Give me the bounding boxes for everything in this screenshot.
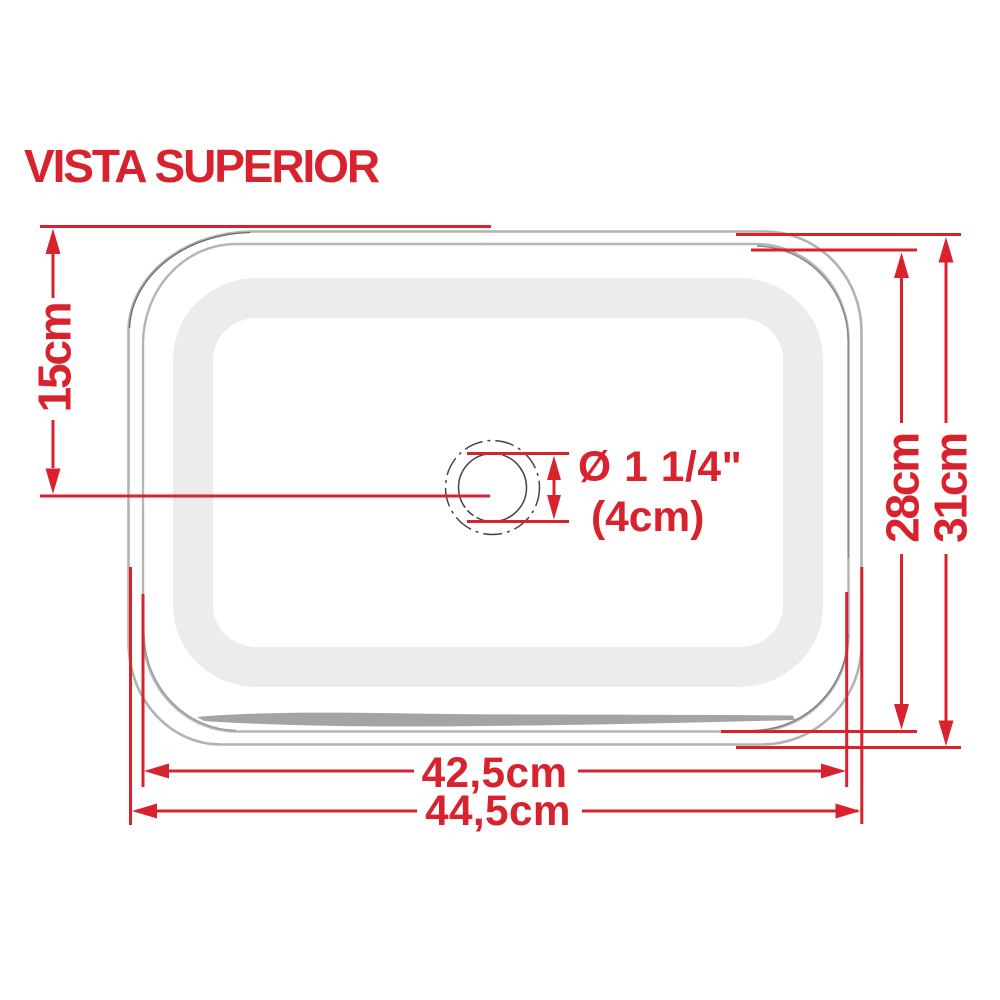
svg-text:Ø 1 1/4": Ø 1 1/4" [578,444,742,491]
svg-text:44,5cm: 44,5cm [425,787,571,834]
svg-text:VISTA SUPERIOR: VISTA SUPERIOR [24,140,380,192]
svg-text:(4cm): (4cm) [591,494,704,541]
svg-text:31cm: 31cm [925,434,977,543]
svg-text:28cm: 28cm [877,434,929,543]
svg-text:15cm: 15cm [29,303,81,412]
